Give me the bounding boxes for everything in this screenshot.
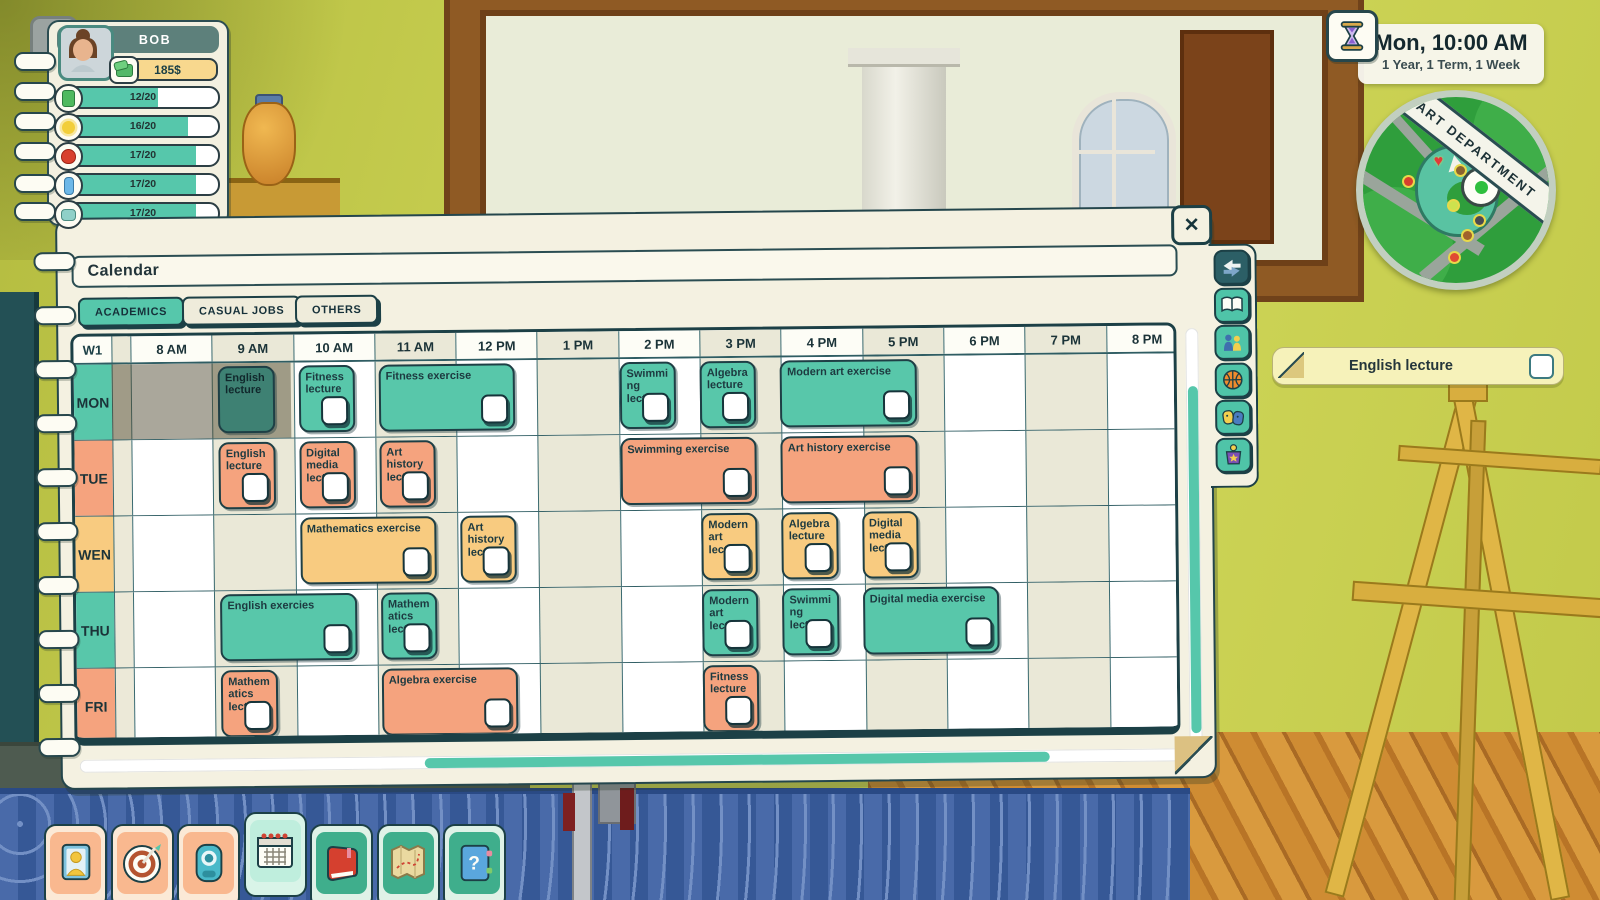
- stat-bar-value: 16/20: [68, 120, 218, 132]
- spiral-ring: [14, 112, 56, 131]
- stat-bar-track: 17/20: [66, 173, 220, 196]
- vase: [242, 102, 296, 186]
- hour-header-5pm: 5 PM: [862, 328, 944, 355]
- event-mathematics-exercise[interactable]: Mathematics exercise: [300, 516, 437, 584]
- schedule-cell[interactable]: [539, 511, 621, 587]
- stat-bar-value: 17/20: [68, 178, 218, 190]
- stat-bar-value: 12/20: [68, 91, 218, 103]
- schedule-cell[interactable]: [943, 355, 1025, 431]
- horizontal-scrollbar-thumb[interactable]: [425, 751, 1050, 768]
- schedule-cell[interactable]: [945, 507, 1027, 583]
- pin-marker: [1449, 201, 1458, 210]
- spiral-ring: [36, 468, 78, 487]
- day-row-wen: WENMathematics exerciseArt history lectu…: [75, 504, 1176, 592]
- schedule-cell[interactable]: [1108, 505, 1181, 581]
- day-label-mon: MON: [74, 364, 113, 439]
- event-fitness-exercise[interactable]: Fitness exercise: [378, 363, 515, 431]
- event-title: Mathematics exercise: [307, 522, 421, 535]
- red-book-icon: [316, 832, 367, 894]
- event-swimming-exercise[interactable]: Swimming exercise: [620, 437, 757, 505]
- tab-casual-jobs[interactable]: CASUAL JOBS: [182, 295, 302, 325]
- heart-marker: ♥: [1434, 153, 1444, 171]
- schedule-cell[interactable]: [134, 667, 216, 743]
- toolbar-objectives-button[interactable]: [111, 824, 174, 900]
- event-checkbox[interactable]: [642, 393, 669, 422]
- portrait-icon: [50, 832, 101, 894]
- notification-fold-icon: [1278, 352, 1304, 378]
- day-label-fri: FRI: [77, 668, 116, 743]
- schedule-cell[interactable]: [457, 436, 539, 512]
- notification-label: English lecture: [1273, 358, 1529, 374]
- table-leg-detail: [620, 788, 634, 830]
- apple-icon: [54, 142, 83, 171]
- stat-bar: 12/20: [54, 84, 222, 108]
- event-checkbox[interactable]: [321, 396, 348, 425]
- day-row-thu: THUEnglish exerciesMathematics lectureMo…: [76, 580, 1177, 668]
- page-corner-fold: [1175, 736, 1213, 774]
- day-row-fri: FRIMathematics lectureAlgebra exerciseFi…: [77, 656, 1178, 744]
- event-algebra-exercise[interactable]: Algebra exercise: [382, 667, 519, 735]
- teal-cabinet: [0, 292, 39, 774]
- event-checkbox[interactable]: [483, 546, 510, 575]
- stat-bar: 16/20: [54, 113, 222, 137]
- schedule-cell[interactable]: [133, 591, 215, 667]
- schedule-cell[interactable]: [539, 587, 621, 663]
- hour-header-3pm: 3 PM: [699, 329, 781, 356]
- event-title: Swimming exercise: [627, 443, 729, 456]
- hour-header-11am: 11 AM: [374, 333, 456, 360]
- event-checkbox[interactable]: [402, 471, 429, 500]
- schedule-cell[interactable]: [1107, 429, 1181, 505]
- column-capital: [848, 48, 960, 67]
- schedule-cell[interactable]: [621, 586, 703, 662]
- event-swimming-lecture[interactable]: Swimming lecture: [619, 362, 676, 430]
- toolbar-calendar-button[interactable]: [244, 812, 307, 897]
- close-icon[interactable]: ✕: [1171, 205, 1212, 245]
- target-icon: [117, 832, 168, 894]
- sun-icon: [54, 113, 83, 142]
- schedule-cell[interactable]: [132, 515, 214, 591]
- balloon-marker: [1450, 253, 1459, 262]
- schedule-cell[interactable]: [131, 439, 213, 515]
- hour-header-9am: 9 AM: [212, 335, 294, 362]
- calendar-icon: [250, 820, 301, 882]
- vertical-scrollbar[interactable]: [1185, 328, 1202, 743]
- tab-academics[interactable]: ACADEMICS: [78, 297, 184, 327]
- event-checkbox[interactable]: [323, 624, 350, 653]
- event-digital-media-lecture[interactable]: Digital media lecture: [862, 511, 919, 579]
- stat-bar-track: 16/20: [66, 115, 220, 138]
- grid-spacer-cell: [112, 440, 132, 515]
- spiral-ring: [14, 174, 56, 193]
- spiral-ring: [36, 522, 78, 541]
- event-title: Fitness lecture: [305, 371, 344, 396]
- event-checkbox[interactable]: [883, 390, 910, 419]
- grid-spacer-cell: [114, 592, 134, 667]
- player-name: BOB: [105, 33, 171, 47]
- swap-arrows-icon[interactable]: [1213, 250, 1249, 285]
- day-label-wen: WEN: [75, 516, 114, 591]
- hourglass-icon[interactable]: [1326, 10, 1378, 62]
- spiral-ring: [34, 306, 76, 325]
- schedule-cell[interactable]: [1027, 582, 1109, 658]
- phone-icon: [183, 832, 234, 894]
- vertical-scrollbar-thumb[interactable]: [1187, 386, 1201, 733]
- spiral-ring: [37, 630, 79, 649]
- event-fitness-lecture[interactable]: Fitness lecture: [298, 365, 355, 433]
- hour-header-10am: 10 AM: [293, 334, 375, 361]
- event-art-history-lecture[interactable]: Art history lecture: [379, 440, 436, 508]
- grid-spacer-column: [111, 336, 130, 362]
- avatar-portrait: [61, 28, 105, 72]
- event-title: Fitness lecture: [710, 671, 749, 696]
- satchel-marker: [1456, 166, 1465, 175]
- spiral-ring: [35, 360, 77, 379]
- event-title: English exercies: [227, 599, 314, 612]
- week-label: W1: [73, 336, 111, 362]
- event-checkbox[interactable]: [403, 547, 430, 576]
- event-checkbox[interactable]: [725, 696, 752, 725]
- grid-spacer-cell: [115, 668, 135, 743]
- schedule-cell[interactable]: [540, 663, 622, 739]
- window-mullion: [1079, 150, 1155, 154]
- event-checkbox[interactable]: [485, 698, 512, 727]
- book-icon[interactable]: [1214, 287, 1250, 322]
- toolbar-phone-button[interactable]: [177, 824, 240, 900]
- hour-header-4pm: 4 PM: [781, 329, 863, 356]
- clock-progress: 1 Year, 1 Term, 1 Week: [1358, 57, 1544, 72]
- notification-checkbox[interactable]: [1529, 354, 1554, 379]
- spiral-ring: [14, 82, 56, 101]
- toolbar-character-button[interactable]: [44, 824, 107, 900]
- event-checkbox[interactable]: [805, 619, 832, 648]
- toolbar-help-button[interactable]: ?: [443, 824, 506, 900]
- hour-header-8am: 8 AM: [130, 335, 212, 362]
- spiral-ring: [38, 684, 80, 703]
- schedule-cell[interactable]: [622, 662, 704, 738]
- avatar: [58, 25, 114, 81]
- bottle-icon: [54, 171, 83, 200]
- event-english-lecture[interactable]: English lecture: [219, 442, 276, 510]
- event-algebra-lecture[interactable]: Algebra lecture: [782, 512, 839, 580]
- apple-marker: [1404, 177, 1413, 186]
- calendar-side-toolbar: [1208, 243, 1259, 487]
- spiral-ring: [38, 738, 80, 757]
- event-title: English lecture: [226, 448, 266, 473]
- horizontal-scrollbar[interactable]: [80, 748, 1202, 773]
- event-mathematics-lecture[interactable]: Mathematics lecture: [221, 670, 278, 738]
- event-checkbox[interactable]: [322, 472, 349, 501]
- calendar-title-text: Calendar: [88, 262, 160, 281]
- toolbar-journal-button[interactable]: [310, 824, 373, 900]
- stat-bar-track: 12/20: [66, 86, 220, 109]
- stat-bar-track: 17/20: [66, 144, 220, 167]
- schedule-cell[interactable]: [1026, 506, 1108, 582]
- event-swimming-lecture[interactable]: Swimming lecture: [782, 588, 839, 656]
- hour-header-8pm: 8 PM: [1106, 325, 1181, 352]
- hour-header-12pm: 12 PM: [455, 332, 537, 359]
- event-title: Art history exercise: [788, 441, 891, 454]
- event-title: Digital media exercise: [870, 592, 986, 605]
- hour-header-2pm: 2 PM: [618, 330, 700, 357]
- event-fitness-lecture[interactable]: Fitness lecture: [703, 665, 760, 733]
- event-title: English lecture: [225, 372, 265, 397]
- masks-icon[interactable]: [1215, 400, 1251, 435]
- clock-time: Mon, 10:00 AM: [1358, 30, 1544, 56]
- schedule-cell[interactable]: [213, 515, 295, 591]
- schedule-cell[interactable]: [944, 431, 1026, 507]
- grid-spacer-cell: [113, 516, 133, 591]
- schedule-cell[interactable]: [1026, 430, 1108, 506]
- toolbar-map-button[interactable]: [377, 824, 440, 900]
- schedule-cell[interactable]: [784, 661, 866, 737]
- event-art-history-lecture[interactable]: Art history lecture: [460, 515, 517, 583]
- event-checkbox[interactable]: [481, 394, 508, 423]
- table-leg-detail: [563, 793, 575, 831]
- event-digital-media-lecture[interactable]: Digital media lecture: [299, 441, 356, 509]
- event-checkbox[interactable]: [966, 617, 993, 646]
- event-checkbox[interactable]: [724, 544, 751, 573]
- wallet-icon: [109, 56, 139, 84]
- schedule-cell[interactable]: [296, 666, 378, 742]
- hour-header-6pm: 6 PM: [943, 327, 1025, 354]
- spiral-ring: [14, 52, 56, 71]
- event-checkbox[interactable]: [884, 542, 911, 571]
- money-value: 185$: [154, 63, 181, 77]
- stat-bar-value: 17/20: [68, 149, 218, 161]
- event-checkbox[interactable]: [244, 701, 271, 730]
- battery-icon: [54, 84, 83, 113]
- day-label-tue: TUE: [74, 440, 113, 515]
- clock-card: Mon, 10:00 AM 1 Year, 1 Term, 1 Week: [1358, 24, 1544, 84]
- event-title: Algebra exercise: [389, 674, 477, 687]
- event-title: Algebra lecture: [707, 367, 748, 392]
- schedule-cell[interactable]: [865, 660, 947, 736]
- schedule-cell[interactable]: [1025, 354, 1107, 430]
- schedule-cell[interactable]: [620, 510, 702, 586]
- event-checkbox[interactable]: [884, 466, 911, 495]
- event-checkbox[interactable]: [725, 620, 752, 649]
- event-digital-media-exercise[interactable]: Digital media exercise: [863, 586, 1000, 654]
- trophy-icon[interactable]: [1215, 437, 1251, 472]
- event-modern-art-exercise[interactable]: Modern art exercise: [780, 359, 917, 427]
- help-book-icon: ?: [449, 832, 500, 894]
- map-icon: [383, 832, 434, 894]
- spiral-ring: [14, 142, 56, 161]
- event-modern-art-lecture[interactable]: Modern art lecture: [701, 513, 758, 581]
- day-row-tue: TUEEnglish lectureDigital media lectureA…: [74, 428, 1175, 516]
- schedule-cell[interactable]: [458, 588, 540, 664]
- svg-text:?: ?: [468, 854, 480, 875]
- camera-marker: [1475, 216, 1484, 225]
- social-icon[interactable]: [1214, 325, 1250, 360]
- stat-bar: 17/20: [54, 171, 222, 195]
- event-art-history-exercise[interactable]: Art history exercise: [781, 435, 918, 503]
- calendar-window-title: Calendar: [71, 244, 1177, 288]
- soap-icon: [54, 200, 83, 229]
- schedule-cell[interactable]: [1109, 657, 1180, 733]
- event-algebra-lecture[interactable]: Algebra lecture: [700, 361, 757, 429]
- day-label-thu: THU: [76, 592, 115, 667]
- event-checkbox[interactable]: [723, 468, 750, 497]
- schedule-cell[interactable]: [947, 659, 1029, 735]
- game-screen: ? BOB 185$ 12/2016/2017/2017/2017/20 Mon…: [0, 0, 1600, 900]
- event-title: Algebra lecture: [789, 518, 830, 543]
- hour-header-1pm: 1 PM: [537, 331, 619, 358]
- tab-others[interactable]: OTHERS: [295, 295, 379, 325]
- basketball-icon[interactable]: [1215, 362, 1251, 397]
- event-checkbox[interactable]: [804, 543, 831, 572]
- event-title: Fitness exercise: [386, 370, 472, 383]
- spiral-ring: [37, 576, 79, 595]
- event-english-exercies[interactable]: English exercies: [220, 593, 357, 661]
- event-modern-art-lecture[interactable]: Modern art lecture: [702, 589, 759, 657]
- schedule-grid: W1 8 AM9 AM10 AM11 AM12 PM1 PM2 PM3 PM4 …: [70, 322, 1180, 746]
- schedule-cell[interactable]: [1108, 581, 1180, 657]
- event-mathematics-lecture[interactable]: Mathematics lecture: [381, 592, 438, 660]
- event-notification[interactable]: English lecture: [1272, 347, 1564, 385]
- schedule-cell[interactable]: [537, 359, 619, 435]
- calendar-window: Calendar ACADEMICS CASUAL JOBS OTHERS ✕ …: [55, 206, 1217, 790]
- day-row-mon: MONEnglish lectureFitness lectureFitness…: [74, 353, 1175, 440]
- player-panel: BOB 185$ 12/2016/2017/2017/2017/20: [47, 20, 229, 226]
- schedule-cell[interactable]: [1106, 353, 1180, 429]
- event-checkbox[interactable]: [241, 473, 268, 502]
- spiral-ring: [33, 252, 75, 271]
- spiral-ring: [14, 202, 56, 221]
- minimap[interactable]: ♥ ART DEPARTMENT: [1356, 90, 1556, 290]
- schedule-cell[interactable]: [1028, 658, 1110, 734]
- event-checkbox[interactable]: [722, 392, 749, 421]
- stat-bar: 17/20: [54, 142, 222, 166]
- schedule-cell[interactable]: [538, 435, 620, 511]
- event-english-lecture[interactable]: English lecture: [218, 366, 275, 434]
- event-title: Modern art exercise: [787, 365, 891, 378]
- event-checkbox[interactable]: [403, 623, 430, 652]
- spiral-ring: [35, 414, 77, 433]
- hour-header-7pm: 7 PM: [1024, 326, 1106, 353]
